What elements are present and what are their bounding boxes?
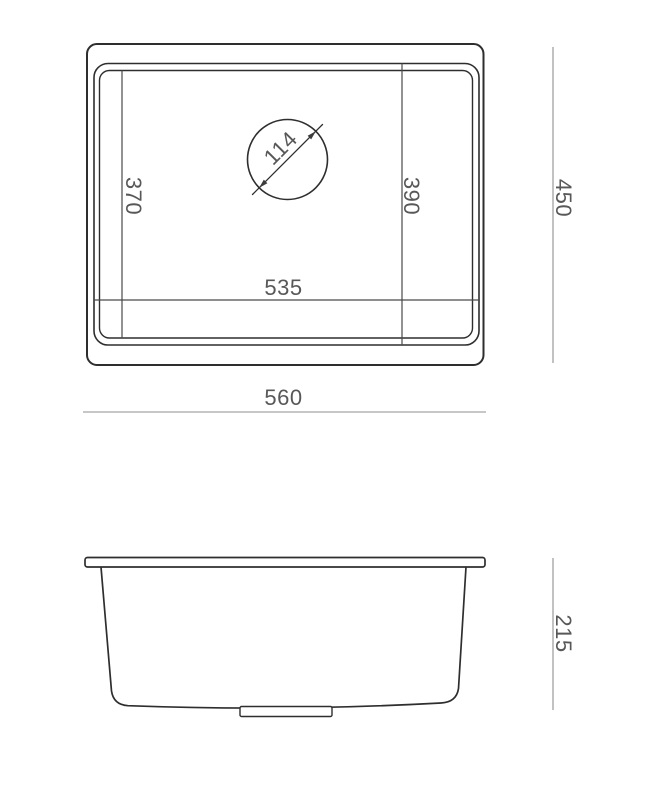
bowl-profile-outline [101,567,466,708]
top-view: 370 390 535 114 560 450 [83,44,576,412]
drain-stub-outline [240,707,332,717]
sink-technical-drawing: 370 390 535 114 560 450 [0,0,646,800]
flange-outline [85,558,485,568]
side-view: 215 [85,558,576,717]
drawing-canvas: 370 390 535 114 560 450 [0,0,646,800]
dim-label-bowl-width: 535 [264,275,302,300]
dim-label-side-height: 215 [551,614,576,652]
dim-label-overall-depth: 450 [551,179,576,217]
dim-label-drain-diameter: 114 [259,126,303,170]
dim-label-overall-width: 560 [264,385,302,410]
dim-label-bowl-depth-right: 390 [399,177,424,215]
dim-label-bowl-depth-left: 370 [121,177,146,215]
